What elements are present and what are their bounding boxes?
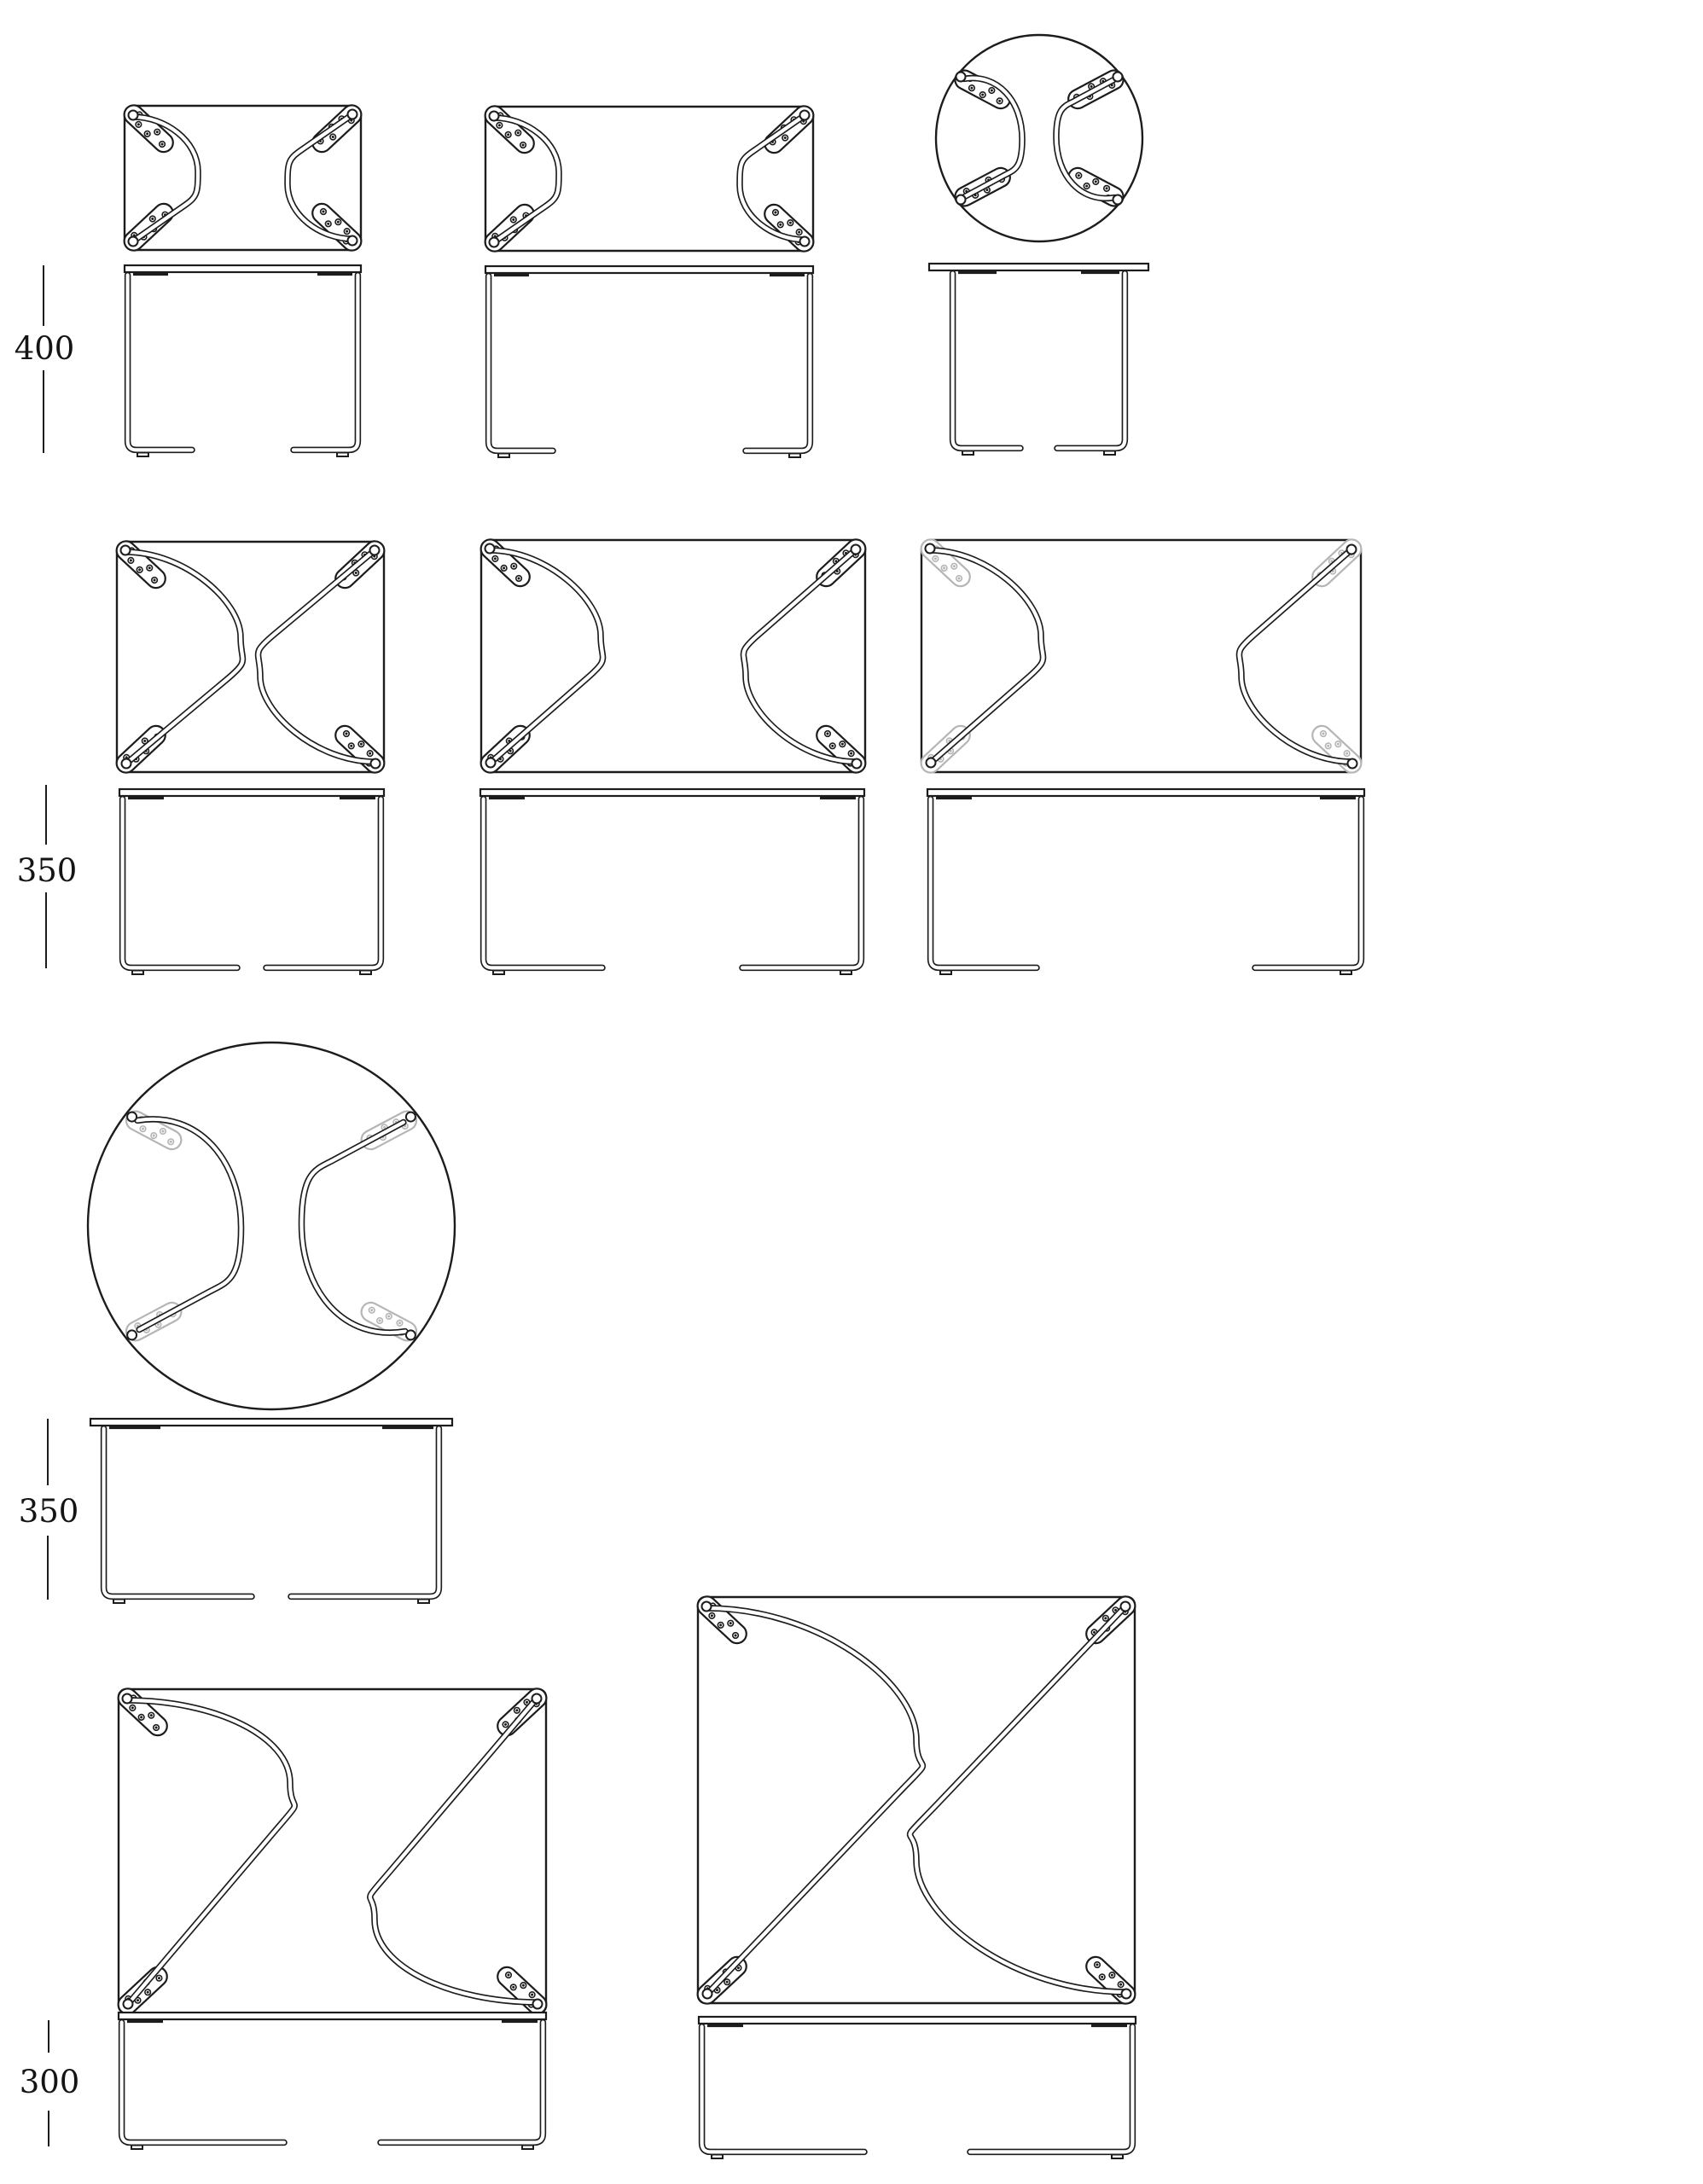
tabletop-outline — [119, 1689, 546, 2013]
glide-right — [1104, 451, 1115, 456]
glide-right — [1112, 2155, 1123, 2159]
technical-drawing-canvas: 400350350300 — [0, 0, 1703, 2184]
dimension-label: 400 — [15, 330, 75, 367]
fixing-batten-left — [489, 796, 525, 800]
leg-left — [122, 2023, 284, 2143]
leg-right — [746, 276, 810, 451]
fixing-batten-right — [340, 796, 375, 800]
plan-view-h350-rect — [477, 536, 869, 776]
glide-left — [940, 971, 951, 975]
tabletop-edge — [927, 789, 1364, 796]
tabletop-edge — [480, 789, 864, 796]
leg-left — [128, 276, 192, 450]
glide-right — [418, 1600, 429, 1604]
elevation-view-h400-round — [929, 264, 1148, 455]
plan-view-h400-round — [936, 35, 1142, 241]
fixing-batten-right — [382, 1426, 433, 1430]
fixing-batten-right — [820, 796, 856, 800]
elevation-view-h350-round-large — [90, 1419, 452, 1603]
fixing-batten-right — [1091, 2024, 1127, 2028]
elevation-view-h300-square — [119, 2013, 546, 2149]
dimension-marker-1: 350 — [17, 785, 78, 968]
elevation-view-h400-rect-wide — [485, 266, 813, 457]
dimension-marker-3: 300 — [20, 2020, 80, 2146]
fixing-batten-left — [109, 1426, 160, 1430]
leg-left — [123, 799, 237, 968]
fixing-batten-right — [1081, 270, 1119, 275]
leg-left — [953, 274, 1020, 449]
leg-right — [970, 2027, 1132, 2152]
fixing-batten-right — [317, 272, 352, 276]
fixing-batten-left — [707, 2024, 743, 2028]
tabletop-outline — [936, 35, 1142, 241]
tabletop-edge — [699, 2017, 1136, 2024]
leg-left — [484, 799, 602, 968]
fixing-batten-left — [128, 796, 164, 800]
leg-right — [1057, 274, 1125, 449]
fixing-batten-right — [502, 2019, 538, 2024]
dimension-marker-2: 350 — [19, 1419, 79, 1600]
leg-right — [266, 799, 381, 968]
leg-left — [104, 1429, 252, 1597]
plan-view-h350-square — [113, 537, 388, 776]
elevation-view-h400-rect-small — [125, 265, 361, 456]
leg-right — [1255, 799, 1361, 968]
fixing-batten-left — [958, 270, 997, 275]
glide-left — [132, 971, 143, 975]
plan-view-h350-rect-wide — [917, 536, 1365, 776]
leg-left — [702, 2027, 864, 2152]
glide-left — [962, 451, 974, 456]
dimension-label: 350 — [19, 1493, 79, 1530]
tabletop-outline — [481, 540, 865, 772]
leg-right — [294, 276, 357, 450]
elevation-view-h350-rect — [480, 789, 864, 974]
dimension-label: 300 — [20, 2064, 80, 2100]
fixing-batten-right — [1320, 796, 1356, 800]
glide-left — [712, 2155, 723, 2159]
fixing-batten-left — [133, 272, 168, 276]
glide-right — [337, 453, 348, 457]
tabletop-edge — [485, 266, 813, 273]
glide-left — [137, 453, 148, 457]
elevation-view-h350-rect-wide — [927, 789, 1364, 974]
leg-right — [291, 1429, 439, 1597]
glide-right — [522, 2146, 533, 2150]
glide-left — [113, 1600, 125, 1604]
glide-left — [498, 454, 509, 458]
fixing-batten-left — [494, 273, 529, 277]
glide-right — [840, 971, 851, 975]
fixing-batten-right — [770, 273, 805, 277]
fixing-batten-left — [936, 796, 972, 800]
tabletop-outline — [921, 540, 1361, 772]
dimension-label: 350 — [17, 852, 78, 889]
glide-left — [493, 971, 504, 975]
glide-right — [1340, 971, 1351, 975]
tabletop-edge — [929, 264, 1148, 270]
tabletop-outline — [698, 1597, 1135, 2003]
elevation-view-h350-square — [119, 789, 384, 974]
tabletop-outline — [88, 1043, 455, 1409]
dimension-marker-0: 400 — [15, 265, 75, 453]
leg-right — [381, 2023, 543, 2143]
plan-view-h350-round-large — [88, 1043, 455, 1409]
leg-right — [742, 799, 861, 968]
leg-left — [931, 799, 1037, 968]
fixing-batten-left — [127, 2019, 163, 2024]
plan-view-h300-square — [114, 1685, 550, 2018]
glide-right — [789, 454, 800, 458]
plan-view-h400-rect-small — [120, 102, 365, 254]
tables-drawing-sheet: 400350350300 — [0, 0, 1703, 2184]
leg-left — [489, 276, 553, 451]
plan-view-h400-rect-wide — [481, 102, 817, 255]
plan-view-h300-square-large — [694, 1593, 1139, 2007]
tabletop-edge — [125, 265, 361, 272]
tabletop-edge — [119, 789, 384, 796]
glide-right — [360, 971, 371, 975]
tabletop-edge — [90, 1419, 452, 1426]
glide-left — [131, 2146, 142, 2150]
tabletop-edge — [119, 2013, 546, 2019]
elevation-view-h300-square-large — [699, 2017, 1136, 2158]
